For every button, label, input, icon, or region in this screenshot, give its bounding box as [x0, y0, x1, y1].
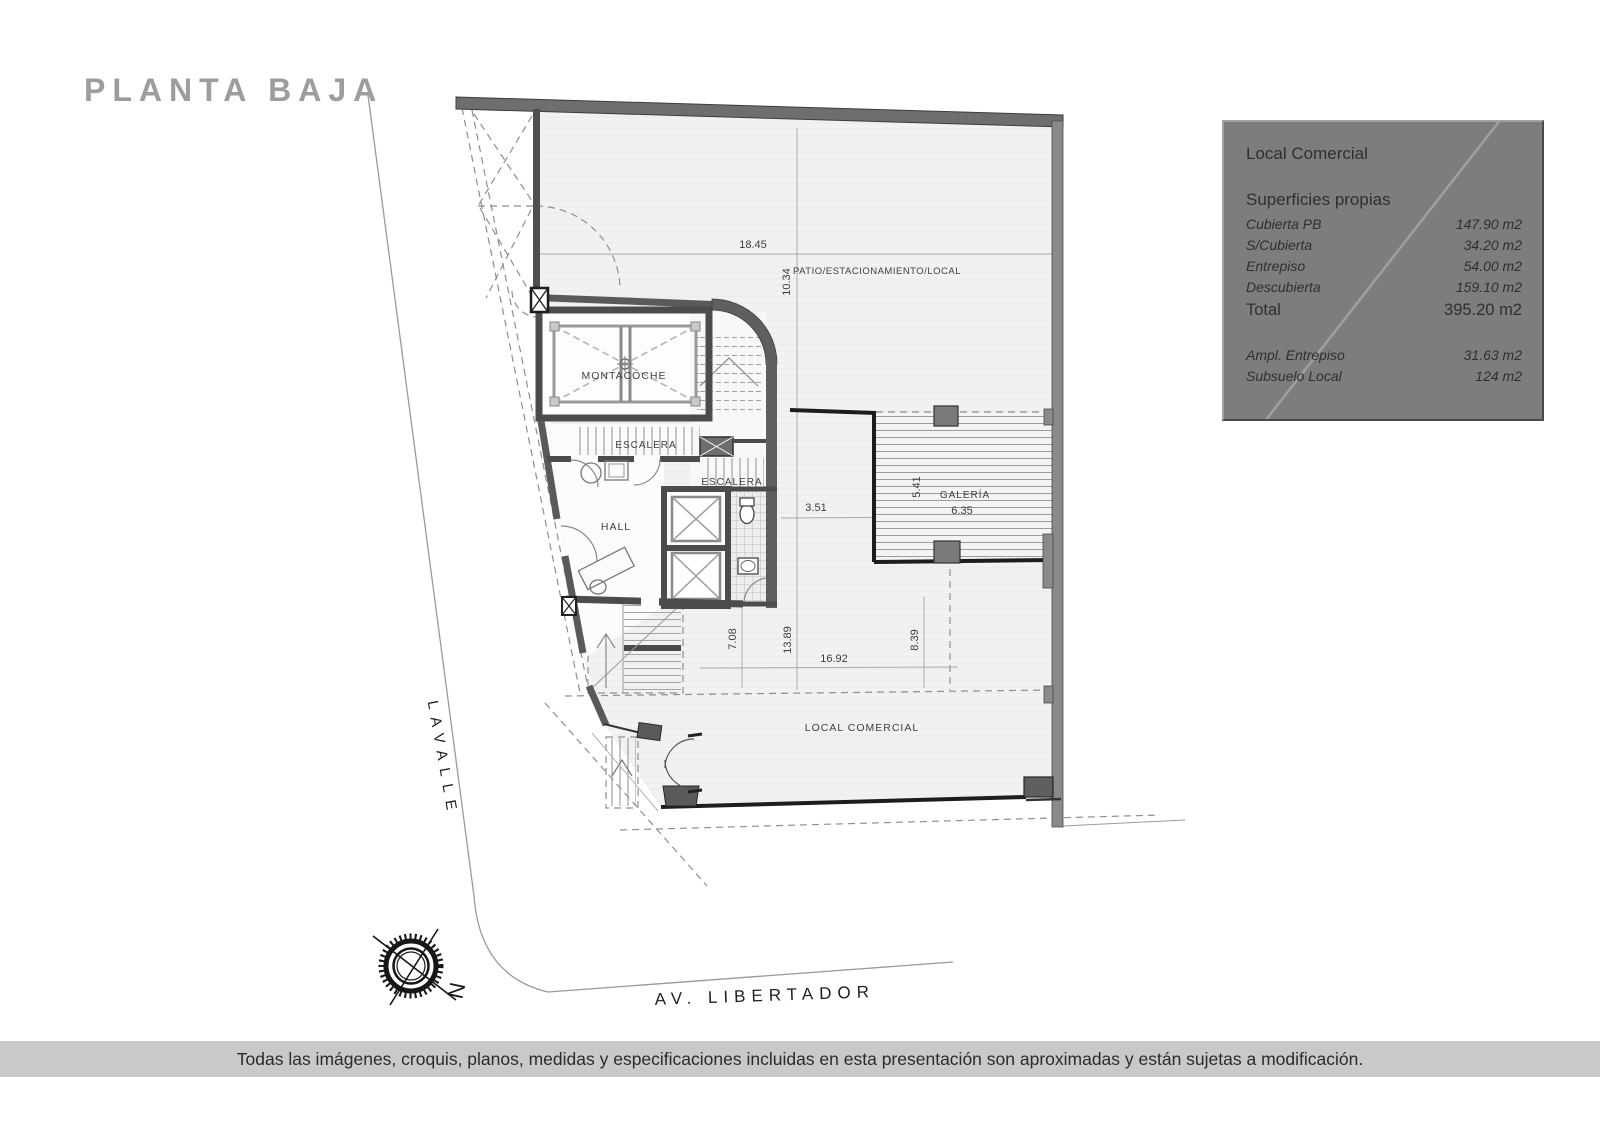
spacer	[1246, 322, 1522, 345]
surface-row: Ampl. Entrepiso 31.63 m2	[1246, 345, 1522, 366]
surface-row-label: Subsuelo Local	[1246, 366, 1342, 387]
surface-total-label: Total	[1246, 298, 1281, 322]
sidewalk-line-right	[1063, 820, 1185, 826]
surface-total-value: 395.20 m2	[1444, 298, 1522, 322]
surface-row-label: S/Cubierta	[1246, 235, 1312, 256]
surface-total-row: Total 395.20 m2	[1246, 298, 1522, 322]
corner-block	[1024, 777, 1053, 797]
surface-row-value: 124 m2	[1475, 366, 1522, 387]
surface-row-value: 34.20 m2	[1464, 235, 1522, 256]
surface-info-box: Local Comercial Superficies propias Cubi…	[1222, 120, 1544, 421]
wall-column-xbox	[531, 288, 548, 312]
surface-row-value: 54.00 m2	[1464, 256, 1522, 277]
north-compass: N	[373, 929, 470, 1005]
surface-row: Subsuelo Local 124 m2	[1246, 366, 1522, 387]
escalera-lower-label: ESCALERA	[701, 477, 762, 488]
core-right-wall	[766, 360, 777, 608]
wall-column-xbox	[562, 597, 576, 615]
left-patio-wall	[533, 109, 540, 299]
dim-3-51: 3.51	[805, 502, 826, 514]
surface-row-value: 31.63 m2	[1464, 345, 1522, 366]
entry-stair-treads	[608, 738, 636, 806]
escalera-upper-label: ESCALERA	[615, 440, 676, 451]
dim-6-35: 6.35	[951, 505, 972, 517]
dim-5-41: 5.41	[911, 476, 923, 497]
patio-label: PATIO/ESTACIONAMIENTO/LOCAL	[793, 266, 961, 277]
surface-row-label: Descubierta	[1246, 277, 1321, 298]
disclaimer-bar: Todas las imágenes, croquis, planos, med…	[0, 1041, 1600, 1077]
hall-label: HALL	[601, 521, 631, 533]
disclaimer-text: Todas las imágenes, croquis, planos, med…	[237, 1049, 1363, 1070]
elevator-shafts	[664, 489, 728, 606]
right-boundary-wall	[1052, 121, 1063, 827]
column	[934, 541, 960, 563]
dim-18-45: 18.45	[739, 239, 767, 251]
dim-13-89: 13.89	[782, 626, 794, 654]
dim-10-34: 10.34	[781, 268, 793, 296]
street-label-libertador: AV. LIBERTADOR	[654, 982, 875, 1009]
info-box-section-title: Superficies propias	[1246, 190, 1522, 210]
dim-7-08: 7.08	[727, 628, 739, 649]
surface-row-value: 159.10 m2	[1456, 277, 1522, 298]
page-root: PLANTA BAJA	[0, 0, 1600, 1131]
surface-row: Descubierta 159.10 m2	[1246, 277, 1522, 298]
surface-row: Entrepiso 54.00 m2	[1246, 256, 1522, 277]
toilet	[740, 505, 754, 524]
surface-row-value: 147.90 m2	[1456, 214, 1522, 235]
surface-row: Cubierta PB 147.90 m2	[1246, 214, 1522, 235]
local-label: LOCAL COMERCIAL	[805, 722, 919, 734]
dim-16-92: 16.92	[820, 653, 848, 665]
column	[934, 406, 958, 426]
dim-8-39: 8.39	[909, 629, 921, 650]
surface-row-label: Entrepiso	[1246, 256, 1305, 277]
hatched-wall-box	[700, 437, 733, 456]
montacoche-label: MONTACOCHE	[581, 370, 666, 382]
surface-row: S/Cubierta 34.20 m2	[1246, 235, 1522, 256]
compass-north-label: N	[442, 980, 470, 1001]
info-box-title: Local Comercial	[1246, 144, 1522, 164]
surface-row-label: Cubierta PB	[1246, 214, 1321, 235]
surface-row-label: Ampl. Entrepiso	[1246, 345, 1345, 366]
galeria-label: GALERÍA	[940, 488, 990, 501]
